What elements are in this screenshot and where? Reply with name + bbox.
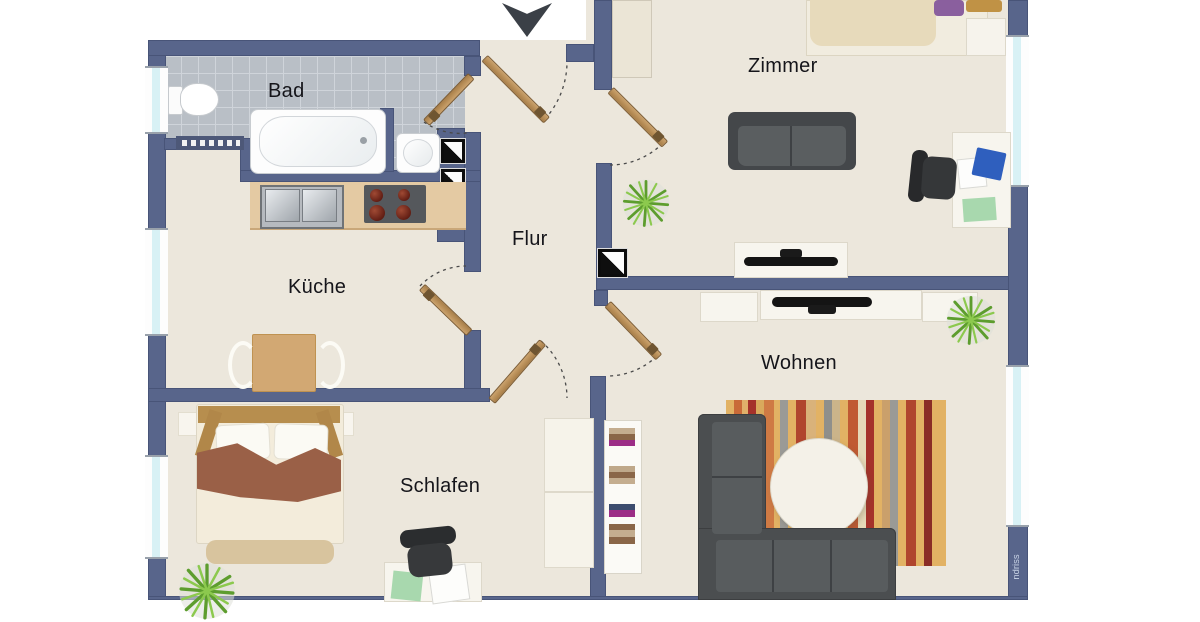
room-label-kueche: Küche: [288, 277, 346, 297]
room-label-wohnen: Wohnen: [761, 353, 837, 373]
room-label-flur: Flur: [512, 229, 548, 249]
schlafen-door-arc: [541, 341, 567, 398]
room-label-bad: Bad: [268, 81, 305, 101]
entrance-door-arc: [545, 63, 567, 119]
kueche-door-arc: [420, 266, 466, 286]
floorplan-page: { "rooms": { "bad": {"label": "Bad"}, "k…: [0, 0, 1200, 600]
room-label-zimmer: Zimmer: [748, 56, 818, 76]
door-swing-arcs: [0, 0, 1200, 600]
wohnen-door-arc: [607, 356, 657, 376]
room-label-schlafen: Schlafen: [400, 476, 480, 496]
zimmer-door-arc: [610, 143, 663, 165]
watermark-text: ndriss: [1011, 543, 1025, 591]
